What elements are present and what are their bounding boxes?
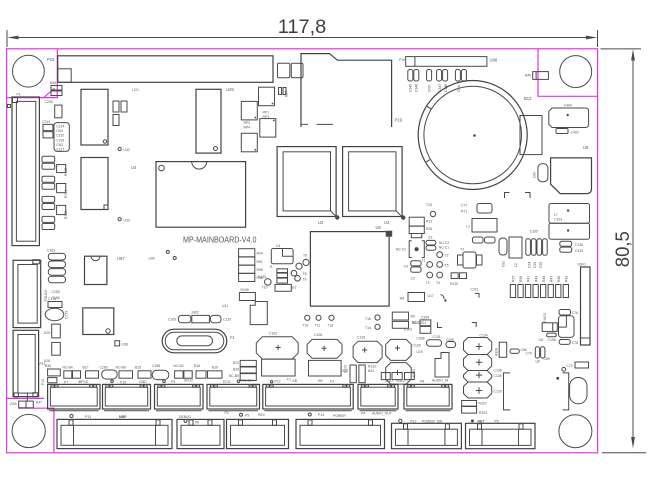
svg-text:C211: C211	[471, 288, 479, 292]
svg-text:B45: B45	[50, 81, 56, 85]
svg-text:C77: C77	[461, 204, 467, 208]
svg-text:C178: C178	[48, 297, 56, 301]
svg-text:C402: C402	[571, 131, 579, 135]
svg-text:C404: C404	[564, 104, 572, 108]
svg-text:T3: T3	[426, 281, 430, 285]
svg-text:C126: C126	[357, 336, 365, 340]
svg-text:R21: R21	[426, 220, 432, 224]
svg-text:C129: C129	[494, 390, 502, 394]
svg-text:C76: C76	[572, 311, 578, 315]
svg-text:RT: RT	[292, 286, 296, 290]
svg-text:T13: T13	[426, 203, 432, 207]
svg-text:P13: P13	[85, 415, 91, 419]
svg-text:C105: C105	[530, 230, 538, 234]
svg-text:R56: R56	[519, 276, 523, 282]
svg-text:T6: T6	[303, 277, 307, 281]
svg-text:U32: U32	[124, 148, 130, 152]
svg-text:P15: P15	[47, 57, 55, 62]
svg-text:R322: R322	[479, 402, 487, 406]
svg-text:R323: R323	[479, 411, 487, 415]
svg-text:C120: C120	[223, 318, 231, 322]
svg-text:B40: B40	[525, 74, 531, 78]
svg-text:U87: U87	[117, 256, 125, 261]
svg-text:P19: P19	[395, 118, 403, 123]
svg-text:KB: KB	[318, 379, 323, 383]
svg-text:R104: R104	[64, 190, 68, 198]
svg-text:C183: C183	[47, 249, 55, 253]
svg-text:C162: C162	[269, 332, 277, 336]
svg-text:C217: C217	[56, 148, 64, 152]
svg-text:T11: T11	[315, 324, 321, 328]
svg-text:SPU2: SPU2	[184, 379, 193, 383]
svg-text:P12: P12	[275, 380, 281, 384]
svg-text:POWER_SW: POWER_SW	[422, 419, 443, 423]
svg-text:P17: P17	[411, 419, 417, 423]
svg-text:P7: P7	[64, 381, 68, 385]
svg-text:POWER: POWER	[333, 414, 346, 418]
svg-text:C136: C136	[575, 243, 583, 247]
svg-text:NET: NET	[478, 419, 486, 423]
svg-text:F2: F2	[330, 379, 334, 383]
svg-text:C92: C92	[533, 262, 537, 268]
svg-text:CN2: CN2	[56, 143, 63, 147]
svg-text:P4: P4	[361, 412, 365, 416]
svg-text:P2: P2	[225, 411, 229, 415]
svg-text:R310: R310	[397, 379, 405, 383]
svg-text:T8: T8	[303, 272, 307, 276]
svg-text:C208: C208	[45, 100, 53, 104]
svg-text:AUDIO_OUT: AUDIO_OUT	[372, 412, 392, 416]
svg-text:P16: P16	[399, 58, 405, 62]
svg-text:C158: C158	[152, 364, 160, 368]
svg-text:B15: B15	[135, 366, 141, 370]
svg-text:C69: C69	[544, 357, 550, 361]
svg-text:S43: S43	[342, 369, 348, 373]
svg-text:B19: B19	[212, 366, 218, 370]
svg-text:117,8: 117,8	[278, 16, 327, 38]
svg-text:U90: U90	[149, 257, 155, 261]
svg-text:R9: R9	[411, 315, 415, 319]
svg-text:C135: C135	[494, 374, 502, 378]
svg-text:IBPCD: IBPCD	[78, 380, 89, 384]
svg-text:C151: C151	[258, 275, 266, 279]
svg-text:C134: C134	[575, 249, 583, 253]
svg-text:P10: P10	[120, 381, 126, 385]
svg-text:L7: L7	[554, 213, 558, 217]
svg-text:R106: R106	[241, 288, 249, 292]
svg-text:MBP: MBP	[119, 415, 127, 419]
svg-text:GND: GND	[139, 380, 147, 384]
svg-text:B35: B35	[45, 364, 51, 368]
svg-text:C131: C131	[433, 335, 441, 339]
svg-text:B17: B17	[83, 365, 89, 369]
svg-text:U17: U17	[428, 294, 434, 298]
svg-text:80,5: 80,5	[612, 231, 634, 267]
svg-text:B22: B22	[233, 361, 239, 365]
svg-text:C70: C70	[526, 352, 532, 356]
svg-text:C95: C95	[539, 262, 543, 268]
svg-text:P3: P3	[171, 380, 175, 384]
svg-text:C109: C109	[168, 318, 176, 322]
svg-text:RP3: RP3	[263, 115, 270, 119]
svg-text:C2: C2	[411, 277, 415, 281]
svg-text:DEBUG: DEBUG	[179, 415, 191, 419]
svg-text:T10: T10	[262, 286, 268, 290]
svg-text:C2: C2	[428, 236, 432, 240]
svg-text:NC-C2: NC-C2	[439, 241, 449, 245]
svg-text:NC-C1: NC-C1	[439, 245, 449, 249]
svg-text:R103: R103	[64, 211, 68, 219]
svg-text:Y1: Y1	[230, 335, 236, 340]
svg-text:C4: C4	[276, 244, 280, 248]
svg-text:B20: B20	[233, 368, 239, 372]
svg-text:P5: P5	[245, 414, 249, 418]
svg-text:LCD: LCD	[132, 88, 139, 92]
svg-text:U9: U9	[583, 145, 589, 150]
svg-text:U5: U5	[376, 225, 382, 230]
svg-text:U6: U6	[536, 360, 540, 364]
svg-text:T18: T18	[328, 324, 334, 328]
svg-text:U2: U2	[318, 220, 324, 225]
svg-text:R71: R71	[461, 210, 467, 214]
svg-text:U11: U11	[222, 304, 228, 308]
svg-text:T1: T1	[422, 259, 426, 263]
svg-text:NC-B0: NC-B0	[229, 374, 239, 378]
svg-text:C327: C327	[385, 379, 393, 383]
svg-text:C308: C308	[416, 337, 424, 341]
svg-text:C210: C210	[56, 134, 64, 138]
svg-text:P14: P14	[318, 413, 324, 417]
svg-text:C134: C134	[480, 334, 488, 338]
svg-text:VGA: VGA	[10, 402, 18, 406]
svg-text:P5: P5	[495, 419, 499, 423]
svg-text:P6: P6	[195, 420, 199, 424]
svg-text:C130: C130	[413, 344, 421, 348]
svg-text:CN4: CN4	[56, 129, 63, 133]
svg-text:R26: R26	[426, 227, 432, 231]
svg-text:C81: C81	[502, 261, 506, 267]
svg-text:C73: C73	[566, 364, 572, 368]
svg-text:R41: R41	[527, 276, 531, 282]
svg-text:U8: U8	[539, 338, 543, 342]
svg-text:U19: U19	[417, 350, 423, 354]
svg-text:Y2: Y2	[460, 248, 464, 252]
svg-text:F1: F1	[287, 378, 291, 382]
svg-text:U28: U28	[44, 359, 50, 363]
svg-text:E163: E163	[404, 328, 412, 332]
svg-text:B47: B47	[36, 401, 42, 405]
svg-text:T9: T9	[303, 254, 307, 258]
svg-text:T2: T2	[445, 254, 449, 258]
svg-text:NC-B4: NC-B4	[63, 365, 73, 369]
svg-text:C78: C78	[572, 341, 578, 345]
svg-text:R8: R8	[400, 297, 404, 301]
svg-text:NC-B2: NC-B2	[174, 364, 184, 368]
svg-text:R48: R48	[542, 276, 546, 282]
svg-text:L2: L2	[514, 263, 518, 267]
svg-text:P13: P13	[41, 379, 45, 385]
svg-text:AUDIO_IN: AUDIO_IN	[432, 379, 449, 383]
svg-text:U4: U4	[131, 165, 137, 170]
svg-text:A308: A308	[495, 348, 499, 356]
svg-text:C103: C103	[554, 218, 562, 222]
svg-text:C213: C213	[42, 120, 50, 124]
svg-text:R37: R37	[512, 276, 516, 282]
svg-text:C4: C4	[404, 265, 408, 269]
svg-text:U3: U3	[384, 220, 390, 225]
svg-text:REC: REC	[258, 413, 266, 417]
svg-text:MP-MAINBOARD-V4.0: MP-MAINBOARD-V4.0	[183, 235, 257, 245]
svg-text:U98: U98	[490, 58, 498, 63]
svg-text:R49: R49	[534, 276, 538, 282]
svg-text:KB: KB	[293, 379, 298, 383]
svg-text:T19: T19	[303, 324, 309, 328]
svg-text:T5: T5	[445, 264, 449, 268]
svg-text:CN5: CN5	[428, 85, 432, 92]
svg-text:U25: U25	[44, 331, 50, 335]
svg-text:SDIO: SDIO	[578, 263, 587, 267]
svg-text:E1603: E1603	[543, 313, 547, 323]
svg-text:P1: P1	[17, 93, 21, 97]
svg-text:R313: R313	[412, 321, 420, 325]
svg-text:R120: R120	[450, 282, 458, 286]
svg-text:ECG: ECG	[223, 380, 231, 384]
svg-text:R42: R42	[565, 276, 569, 282]
svg-text:C214: C214	[56, 125, 64, 129]
svg-text:R47: R47	[549, 276, 553, 282]
svg-text:C345: C345	[409, 84, 413, 92]
svg-text:C155: C155	[52, 290, 60, 294]
svg-text:C179: C179	[65, 311, 69, 319]
svg-text:R98: R98	[257, 268, 263, 272]
svg-text:T16: T16	[365, 317, 371, 321]
svg-text:R87: R87	[285, 91, 289, 97]
svg-text:C198: C198	[548, 338, 556, 342]
svg-text:R94: R94	[257, 252, 263, 256]
svg-text:C94: C94	[528, 262, 532, 268]
svg-text:SW2: SW2	[192, 311, 199, 315]
svg-text:NC-B6: NC-B6	[116, 365, 126, 369]
svg-text:NC-X1: NC-X1	[396, 248, 406, 252]
svg-text:T14: T14	[365, 326, 371, 330]
svg-text:R91: R91	[257, 260, 263, 264]
svg-text:R105: R105	[64, 168, 68, 176]
svg-text:C216: C216	[56, 138, 64, 142]
svg-text:C204: C204	[421, 316, 429, 320]
svg-text:B44: B44	[368, 369, 374, 373]
svg-text:B13: B13	[524, 96, 532, 101]
svg-text:T4: T4	[436, 281, 440, 285]
svg-text:WD,B14: WD,B14	[241, 379, 254, 383]
svg-text:U29: U29	[226, 87, 234, 92]
svg-text:R: R	[270, 265, 273, 269]
svg-text:C80: C80	[533, 172, 537, 178]
svg-text:R46: R46	[557, 276, 561, 282]
svg-text:C106: C106	[314, 333, 322, 337]
svg-text:C180: C180	[100, 365, 108, 369]
svg-text:U38: U38	[122, 343, 128, 347]
svg-text:RP4: RP4	[244, 125, 251, 129]
svg-text:U33: U33	[124, 219, 130, 223]
svg-text:C346: C346	[415, 84, 419, 92]
svg-text:P8: P8	[420, 380, 424, 384]
svg-text:B18: B18	[194, 364, 200, 368]
svg-text:C136: C136	[494, 369, 502, 373]
svg-text:L1: L1	[466, 225, 470, 229]
